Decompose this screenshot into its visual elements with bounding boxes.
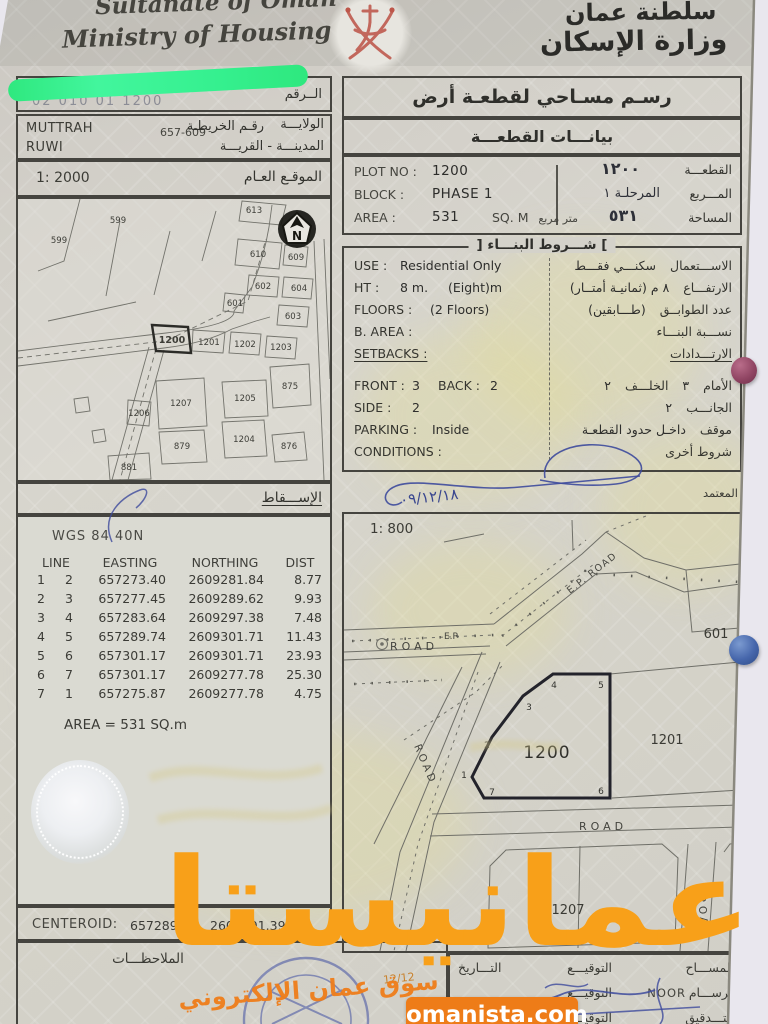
- draftsman-label: الرســـام: [689, 985, 736, 1000]
- coord-cell: 657301.17: [84, 646, 176, 665]
- plot-no-value-ar: ١٢٠٠: [601, 159, 640, 178]
- use-value: Residential Only: [400, 258, 501, 273]
- coord-cell: 8.77: [274, 570, 326, 589]
- building-area-label: B. AREA :: [354, 324, 412, 339]
- svg-text:603: 603: [285, 312, 301, 322]
- front-label-ar: الأمام: [703, 378, 732, 393]
- svg-text:1200: 1200: [159, 335, 186, 346]
- coord-cell: 4: [28, 627, 54, 646]
- projection-label: الإســـقاط: [262, 490, 322, 506]
- coord-cell: 7: [28, 684, 54, 703]
- svg-text:879: 879: [174, 442, 190, 452]
- approval-date-handwritten: ٠٩/١٢/١٨: [399, 485, 459, 509]
- coord-cell: 2609277.78: [176, 665, 274, 684]
- coord-cell: 657277.45: [84, 589, 176, 608]
- coord-row: 23657277.452609289.629.93: [28, 589, 326, 608]
- hologram-seal: [31, 760, 129, 864]
- svg-text:1201: 1201: [198, 338, 220, 348]
- coord-cell: 657273.40: [84, 570, 176, 589]
- svg-text:875: 875: [282, 382, 298, 392]
- coord-cell: 11.43: [274, 627, 326, 646]
- svg-text:1: 1: [461, 771, 467, 781]
- building-conditions-en: USE :Residential Only HT :8 m.(Eight)m F…: [354, 258, 546, 466]
- svg-text:599: 599: [110, 216, 126, 226]
- wilaya-value: MUTTRAH: [26, 121, 93, 136]
- svg-text:599: 599: [51, 236, 67, 246]
- document-number-row: 02 010 01 1200 الــرقم: [16, 76, 332, 112]
- building-conditions-box: شـــروط البنـــاء USE :Residential Only …: [342, 246, 742, 472]
- back-value: 2: [490, 378, 498, 393]
- coord-cell: 7: [54, 665, 84, 684]
- block-label: BLOCK :: [354, 187, 404, 202]
- svg-text:1207: 1207: [170, 399, 192, 409]
- document-title: رسـم مسـاحي لقطعـة أرض: [344, 86, 740, 108]
- oman-national-emblem-icon: [340, 0, 400, 66]
- projection-row: الإســـقاط: [16, 482, 332, 515]
- ht-value-ar: ٨ م (ثمانيـة أمتــار): [570, 280, 669, 295]
- centroid-label: CENTEROID:: [32, 917, 118, 932]
- coord-cell: 1: [28, 570, 54, 589]
- side-label-ar: الجانـــب: [686, 400, 732, 415]
- svg-text:1204: 1204: [233, 435, 255, 445]
- ep-label: E.P: [444, 632, 459, 642]
- svg-text:3: 3: [526, 703, 532, 713]
- road-centerlines: [18, 239, 266, 480]
- coord-row: 56657301.172609301.7123.93: [28, 646, 326, 665]
- coord-cell: 2609289.62: [176, 589, 274, 608]
- side-value-ar: ٢: [665, 400, 672, 415]
- approval-strip: المعتمد ٠٩/١٢/١٨: [342, 472, 742, 512]
- other-conditions-label-ar: شروط أخرى: [665, 444, 732, 459]
- area-label: AREA :: [354, 210, 396, 225]
- front-value-ar: ٣: [682, 378, 689, 393]
- parking-value: Inside: [432, 422, 469, 437]
- coord-cell: 5: [54, 627, 84, 646]
- back-label-ar: الخلـــف: [625, 378, 668, 393]
- plot-label-ar: القطعـــة: [684, 162, 732, 177]
- watermark-site-badge: omanista.com: [406, 997, 578, 1024]
- survey-monument-center: [380, 642, 384, 646]
- front-label: FRONT :: [354, 378, 412, 393]
- block-label-ar: المـــربع: [689, 186, 732, 201]
- parking-label: PARKING :: [354, 422, 432, 437]
- svg-text:1203: 1203: [270, 343, 292, 353]
- draftsman-name: NOOR: [647, 986, 686, 1000]
- watermark-brand: عمانيستا: [163, 842, 752, 964]
- push-pin-maroon: [731, 357, 757, 384]
- use-value-ar: سكنـــي فقـــط: [574, 258, 656, 273]
- floors-value-ar: (طـــابقين): [588, 302, 646, 317]
- coordinates-table: LINE EASTING NORTHING DIST 12657273.4026…: [28, 555, 326, 703]
- coord-row: 67657301.172609277.7825.30: [28, 665, 326, 684]
- scanned-survey-document: Sultanate of Oman Ministry of Housing سل…: [0, 0, 768, 1024]
- parking-value-ar: داخـل حدود القطعـة: [582, 422, 686, 437]
- document-title-row: رسـم مسـاحي لقطعـة أرض: [342, 76, 742, 118]
- north-arrow-icon: N: [278, 210, 316, 248]
- general-scale-label: الموقـع العـام: [244, 169, 322, 185]
- ht-label: HT :: [354, 280, 400, 295]
- svg-text:6: 6: [598, 787, 604, 797]
- north-letter: N: [292, 229, 302, 243]
- coord-cell: 657289.74: [84, 627, 176, 646]
- ministry-title-ar-line2: وزارة الإسكان: [540, 24, 728, 58]
- area-unit: SQ. M: [492, 210, 529, 225]
- coord-row: 71657275.872609277.784.75: [28, 684, 326, 703]
- floors-value: (2 Floors): [430, 302, 489, 317]
- coord-cell: 4.75: [274, 684, 326, 703]
- coord-cell: 2: [54, 570, 84, 589]
- general-location-map: N 599 599 613 610 609 602 604 601 603 12…: [18, 199, 330, 480]
- parcel-labels: 599 599 613 610 609 602 604 601 603 1200…: [51, 206, 307, 473]
- col-header: DIST: [274, 555, 326, 570]
- coord-cell: 2609281.84: [176, 570, 274, 589]
- general-location-map-box: N 599 599 613 610 609 602 604 601 603 12…: [16, 197, 332, 482]
- plot-no-value: 1200: [432, 163, 468, 179]
- svg-text:604: 604: [291, 284, 307, 294]
- svg-text:5: 5: [598, 681, 604, 691]
- svg-text:613: 613: [246, 206, 262, 216]
- coord-cell: 2609297.38: [176, 608, 274, 627]
- city-label: المدينـــة - القريـــة: [220, 139, 324, 154]
- coord-cell: 3: [28, 608, 54, 627]
- coord-cell: 25.30: [274, 665, 326, 684]
- coord-cell: 657301.17: [84, 665, 176, 684]
- svg-text:2: 2: [484, 741, 490, 751]
- city-value: RUWI: [26, 140, 63, 155]
- floors-label-ar: عدد الطوابــق: [660, 302, 732, 317]
- use-label: USE :: [354, 258, 400, 273]
- plot-no-label: PLOT NO :: [354, 164, 417, 179]
- road-label-left: ROAD: [390, 640, 438, 653]
- svg-text:602: 602: [255, 282, 271, 292]
- general-scale-value: 1: 2000: [36, 170, 90, 186]
- svg-text:4: 4: [551, 681, 557, 691]
- map-number-label: رقـم الخريطـة: [187, 119, 264, 134]
- ht-label-ar: الارتفـــاع: [683, 280, 732, 295]
- area-note: AREA = 531 SQ.m: [64, 717, 187, 733]
- coord-cell: 657275.87: [84, 684, 176, 703]
- coord-cell: 5: [28, 646, 54, 665]
- area-value-ar: ٥٣١: [609, 206, 638, 225]
- number-label: الــرقم: [285, 87, 322, 102]
- area-value: 531: [432, 209, 459, 225]
- ht-value: 8 m.: [400, 280, 448, 295]
- coord-cell: 4: [54, 608, 84, 627]
- approved-label: المعتمد: [703, 486, 738, 500]
- plot-vertex-labels: 1 2 3 4 5 6 7: [461, 681, 604, 798]
- push-pin-blue: [729, 635, 759, 665]
- side-value: 2: [412, 400, 420, 415]
- coord-cell: 23.93: [274, 646, 326, 665]
- ht-note: (Eight)m: [448, 280, 502, 295]
- neighbor-plot-topright: 601: [704, 627, 729, 642]
- coord-cell: 9.93: [274, 589, 326, 608]
- side-label: SIDE :: [354, 400, 412, 415]
- conditions-label: CONDITIONS :: [354, 444, 442, 459]
- plot-data-section-title: بيانـــات القطعـــة: [344, 127, 740, 146]
- plot-data-header-row: بيانـــات القطعـــة: [342, 118, 742, 155]
- building-conditions-ar: الاســـتعمالسكنـــي فقـــط الارتفـــاع٨ …: [550, 258, 732, 466]
- setbacks-label: SETBACKS :: [354, 346, 427, 361]
- coord-cell: 657283.64: [84, 608, 176, 627]
- svg-text:876: 876: [281, 442, 297, 452]
- col-header: EASTING: [84, 555, 176, 570]
- coord-cell: 6: [54, 646, 84, 665]
- coord-cell: 2609301.71: [176, 646, 274, 665]
- general-scale-row: 1: 2000 الموقـع العـام: [16, 160, 332, 197]
- wilaya-label: الولايـــة: [280, 117, 324, 132]
- parking-label-ar: موقف: [700, 422, 732, 437]
- building-area-label-ar: نســـبة البنـــاء: [656, 324, 732, 339]
- back-value-ar: ٢: [604, 378, 611, 393]
- col-header: NORTHING: [176, 555, 274, 570]
- use-label-ar: الاســـتعمال: [670, 258, 732, 273]
- coords-table-body: 12657273.402609281.848.7723657277.452609…: [28, 570, 326, 703]
- coord-cell: 2609301.71: [176, 627, 274, 646]
- subject-plot-outline: [472, 674, 610, 798]
- block-value: PHASE 1: [432, 186, 493, 202]
- area-label-ar: المساحة: [688, 210, 732, 225]
- building-conditions-title: شـــروط البنـــاء: [469, 237, 616, 253]
- svg-text:609: 609: [288, 253, 304, 263]
- coord-row: 12657273.402609281.848.77: [28, 570, 326, 589]
- svg-text:1202: 1202: [234, 340, 256, 350]
- area-unit-ar: متر مربع: [538, 212, 578, 225]
- front-value: 3: [412, 378, 438, 393]
- floors-label: FLOORS :: [354, 302, 430, 317]
- coord-row: 34657283.642609297.387.48: [28, 608, 326, 627]
- svg-text:7: 7: [489, 788, 495, 798]
- svg-text:601: 601: [227, 299, 243, 309]
- ministry-title-ar-line1: سلطنة عمان: [565, 0, 717, 27]
- svg-text:1206: 1206: [128, 409, 150, 419]
- col-header: LINE: [28, 555, 84, 570]
- coord-cell: 2: [28, 589, 54, 608]
- setbacks-label-ar: الارتـــدادات: [670, 346, 732, 361]
- datum-label: WGS 84 40N: [52, 529, 144, 544]
- back-label: BACK :: [438, 378, 490, 393]
- neighbor-plot-right: 1201: [650, 733, 683, 748]
- block-value-ar: المرحلـة ١: [604, 186, 661, 201]
- plot-data-box: PLOT NO : 1200 BLOCK : PHASE 1 AREA : 53…: [342, 155, 742, 235]
- svg-text:881: 881: [121, 463, 137, 473]
- svg-text:610: 610: [250, 250, 266, 260]
- location-row: MUTTRAH RUWI 657-609 رقـم الخريطـة الولا…: [16, 114, 332, 160]
- coord-cell: 6: [28, 665, 54, 684]
- check-label: التـــدقيق: [685, 1010, 734, 1024]
- svg-text:1205: 1205: [234, 394, 256, 404]
- coord-cell: 7.48: [274, 608, 326, 627]
- coord-cell: 1: [54, 684, 84, 703]
- subject-plot-number: 1200: [523, 743, 570, 763]
- coord-row: 45657289.742609301.7111.43: [28, 627, 326, 646]
- coordinates-table-header: LINE EASTING NORTHING DIST: [28, 555, 326, 570]
- coord-cell: 3: [54, 589, 84, 608]
- detail-scale-value: 1: 800: [370, 521, 413, 537]
- road-label-down: ROAD: [411, 742, 439, 786]
- coord-cell: 2609277.78: [176, 684, 274, 703]
